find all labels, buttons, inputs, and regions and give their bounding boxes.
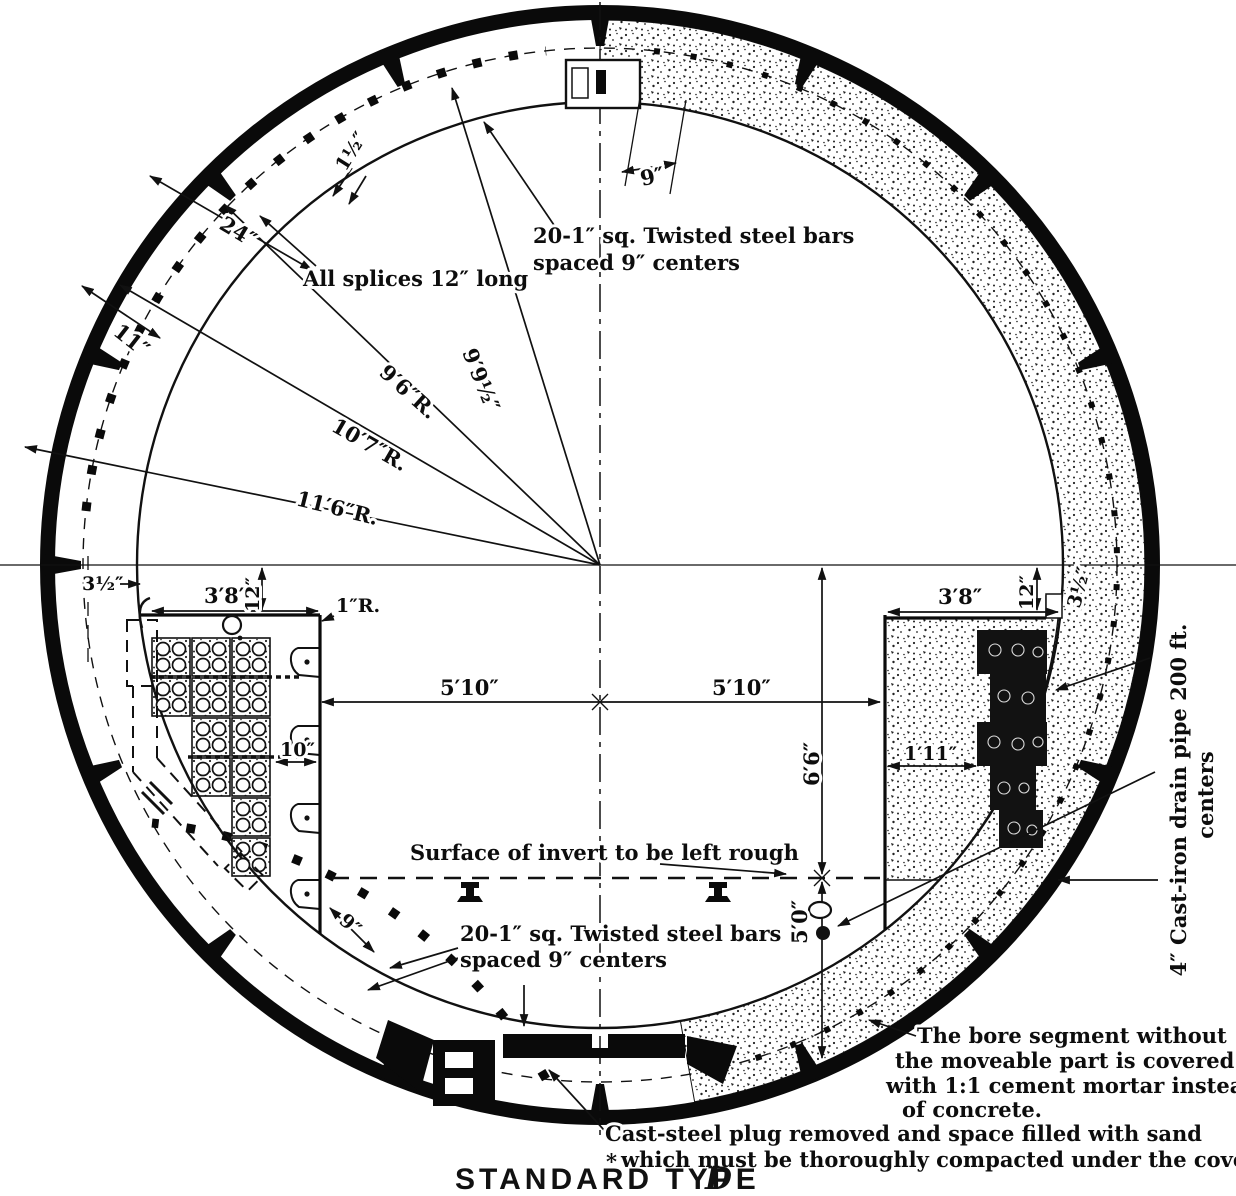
- dim-3half-left: 3½″: [82, 573, 124, 595]
- wall-brackets: [291, 648, 320, 909]
- bottom-bars-note-line2: spaced 9″ centers: [460, 947, 667, 972]
- radius-10-7: 10′7″R.: [328, 413, 413, 476]
- drain-pipe-sections: [809, 902, 831, 940]
- tunnel-cross-section-drawing: 20-1″ sq. Twisted steel bars spaced 9″ c…: [0, 0, 1236, 1196]
- dim-9-top: 9″: [638, 161, 667, 190]
- dim-6-6: 6′6″: [799, 742, 824, 786]
- dim-5-10-right: 5′10″: [712, 675, 771, 700]
- mortar-note-line1: The bore segment without: [917, 1023, 1227, 1048]
- radius-11-6: 11′6″R.: [294, 486, 381, 530]
- top-bars-note-line2: spaced 9″ centers: [533, 250, 740, 275]
- mortar-note-line4: of concrete.: [902, 1097, 1042, 1122]
- dim-11: 11″: [109, 318, 155, 361]
- dim-1half: 1½″: [331, 128, 372, 175]
- rail-right: [705, 882, 731, 902]
- bottom-bars-note-line1: 20-1″ sq. Twisted steel bars: [460, 921, 781, 946]
- drawing-sheet: 20-1″ sq. Twisted steel bars spaced 9″ c…: [0, 0, 1236, 1196]
- dim-1-11: 1′11″: [904, 743, 958, 765]
- splices-note: All splices 12″ long: [302, 266, 528, 291]
- splice-detail: [566, 60, 640, 108]
- drain-note-line1: 4″ Cast-iron drain pipe 200 ft.: [1166, 624, 1191, 977]
- drain-note-line2: centers: [1193, 751, 1218, 838]
- mortar-note-line2: the moveable part is covered: [895, 1048, 1235, 1073]
- invert-rough-note: Surface of invert to be left rough: [410, 840, 799, 865]
- dim-1R-left: 1″R.: [336, 595, 380, 617]
- dim-10: 10″: [280, 739, 315, 761]
- dim-9-bottom: 9″: [335, 909, 366, 940]
- top-bars-note-line1: 20-1″ sq. Twisted steel bars: [533, 223, 854, 248]
- plug-note-line1: Cast-steel plug removed and space filled…: [605, 1121, 1202, 1146]
- dim-12-left: 12″: [242, 577, 264, 612]
- dim-12-right: 12″: [1016, 575, 1038, 610]
- mortar-note-line3: with 1:1 cement mortar instead: [885, 1073, 1236, 1098]
- dim-5-10-left: 5′10″: [440, 675, 499, 700]
- dim-5-0: 5′0″: [787, 900, 812, 944]
- drawing-title-type-letter: D: [704, 1161, 732, 1196]
- rail-left: [457, 882, 483, 902]
- dim-3-8-right: 3′8″: [938, 584, 982, 609]
- radius-9-6: 9′6″R.: [375, 359, 443, 424]
- radius-9-9half: 9′9½″: [457, 345, 505, 416]
